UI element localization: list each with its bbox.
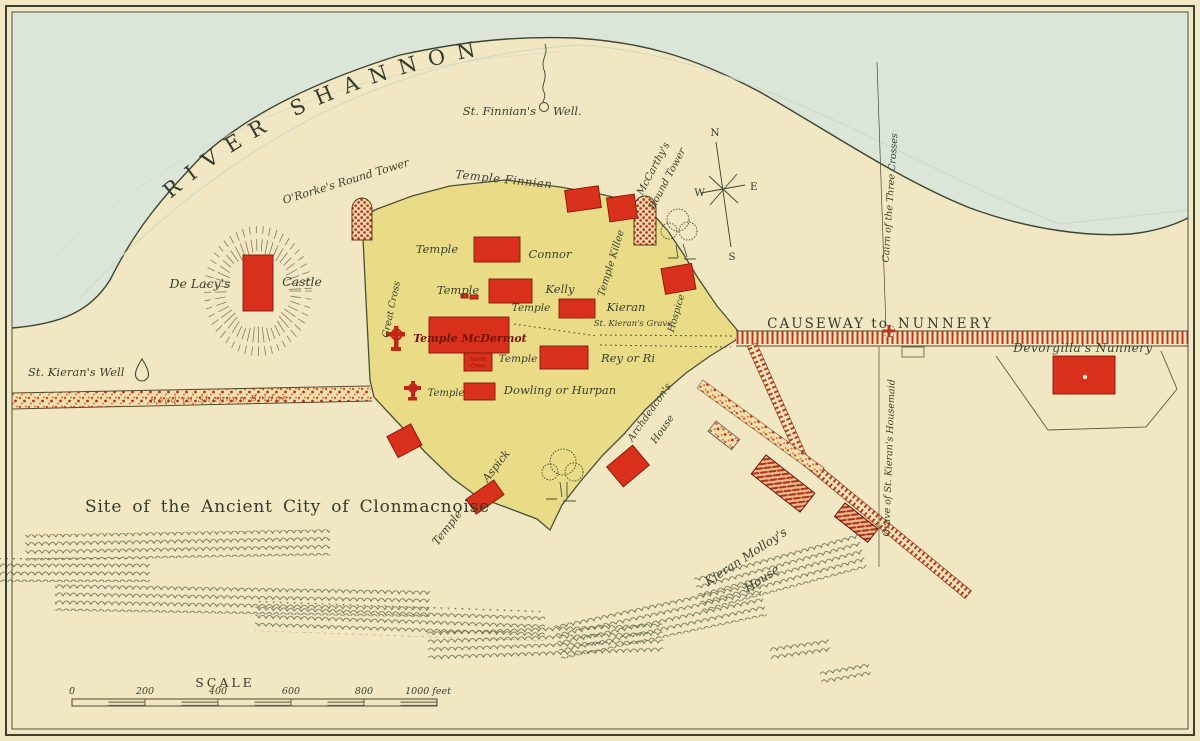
- scale-tick-200: 200: [135, 686, 154, 697]
- label-north-cross-b: Cross: [470, 364, 486, 370]
- scale-tick-600: 600: [282, 686, 300, 697]
- building-devorgillas-nunnery: [1053, 356, 1115, 394]
- scale-end-label: 1000 feet: [405, 686, 451, 697]
- compass-e: E: [750, 181, 758, 193]
- nunnery-door-dot: [1083, 375, 1087, 379]
- label-castle: Castle: [282, 274, 322, 289]
- label-north-cross-a: North: [469, 357, 486, 363]
- scale-tick-400: 400: [208, 686, 227, 697]
- label-temple-kelly-a: Temple: [437, 283, 480, 297]
- building-north-wall-2: [606, 194, 637, 222]
- label-causeway: CAUSEWAY to: [767, 316, 889, 332]
- label-st-kierans-grave: St. Kieran's Grave: [594, 319, 673, 329]
- site-title: Site of the Ancient City of Clonmacnoise: [85, 497, 490, 517]
- compass-s: S: [728, 251, 735, 263]
- label-temple-dowling-a: Temple: [428, 388, 465, 399]
- label-devorgillas-nunnery: Devorgilla's Nunnery: [1012, 341, 1152, 355]
- label-finnians-well-b: Well.: [553, 104, 582, 118]
- ororkes-round-tower-icon: [352, 198, 372, 240]
- compass-n: N: [710, 127, 719, 139]
- label-temple-rey-b: Rey or Ri: [600, 351, 655, 365]
- label-temple-mcdermot: Temple McDermot: [413, 332, 527, 345]
- compass-w: W: [694, 187, 705, 199]
- building-temple-kieran: [559, 299, 595, 318]
- causeway-small-plot: [902, 347, 924, 357]
- clonmacnoise-map-page: Road to Shannon Bridge: [0, 0, 1200, 741]
- label-temple-rey-a: Temple: [499, 353, 538, 365]
- label-finnians-well-a: St. Finnian's: [463, 104, 536, 118]
- label-temple-kelly-b: Kelly: [545, 282, 575, 296]
- building-north-wall-1: [565, 186, 602, 213]
- label-temple-kieran-a: Temple: [512, 302, 551, 314]
- label-temple-kieran-b: Kieran: [606, 300, 646, 314]
- label-temple-dowling-b: Dowling or Hurpan: [503, 383, 616, 397]
- building-temple-connor: [474, 237, 520, 262]
- building-temple-dowling: [464, 383, 495, 400]
- scale-tick-800: 800: [355, 686, 373, 697]
- label-de-lacys: De Lacy's: [168, 276, 230, 291]
- building-temple-kelly: [489, 279, 532, 303]
- label-temple-connor-b: Connor: [529, 247, 573, 261]
- building-temple-rey: [540, 346, 588, 369]
- label-st-kierans-well: St. Kieran's Well: [28, 365, 125, 379]
- st-finnians-well-marker: [540, 103, 549, 112]
- scale-tick-0: 0: [69, 686, 75, 697]
- label-temple-connor-a: Temple: [416, 242, 459, 256]
- building-de-lacys-castle: [243, 255, 273, 311]
- building-hospice: [661, 263, 696, 294]
- label-nunnery-road: NUNNERY: [898, 316, 994, 332]
- clonmacnoise-map: Road to Shannon Bridge: [0, 0, 1200, 741]
